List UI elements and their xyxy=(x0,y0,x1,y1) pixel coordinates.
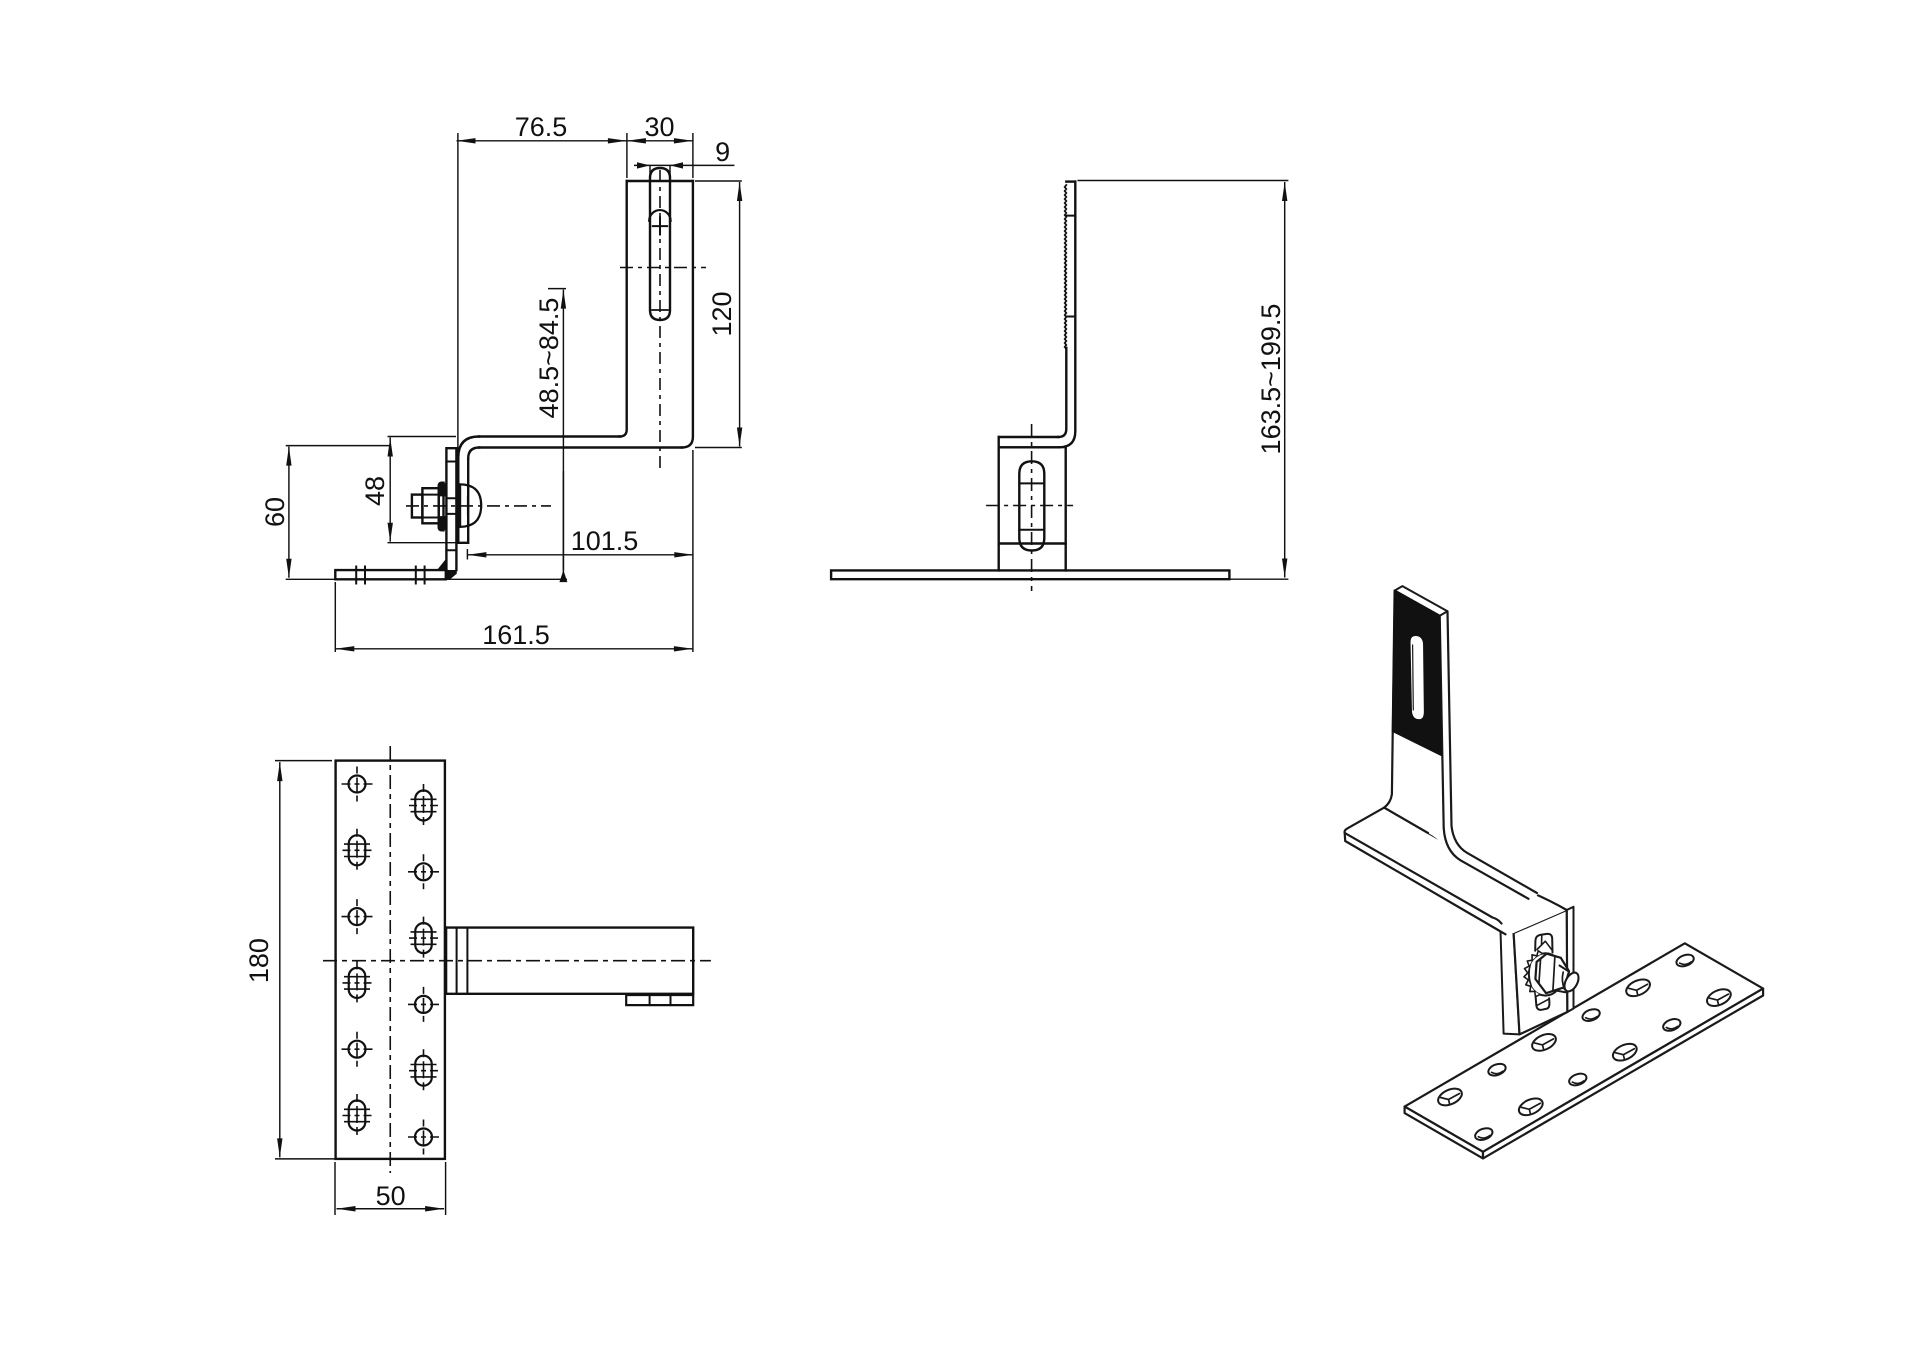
svg-text:60: 60 xyxy=(260,497,290,527)
svg-text:48: 48 xyxy=(360,476,390,506)
svg-text:76.5: 76.5 xyxy=(515,112,568,142)
svg-text:163.5~199.5: 163.5~199.5 xyxy=(1256,304,1286,455)
svg-text:48.5~84.5: 48.5~84.5 xyxy=(534,298,564,419)
svg-text:120: 120 xyxy=(707,291,737,336)
svg-text:50: 50 xyxy=(376,1181,406,1211)
svg-text:161.5: 161.5 xyxy=(482,620,550,650)
svg-text:180: 180 xyxy=(244,938,274,983)
svg-text:30: 30 xyxy=(644,112,674,142)
svg-text:101.5: 101.5 xyxy=(571,526,639,556)
svg-text:9: 9 xyxy=(715,137,730,167)
